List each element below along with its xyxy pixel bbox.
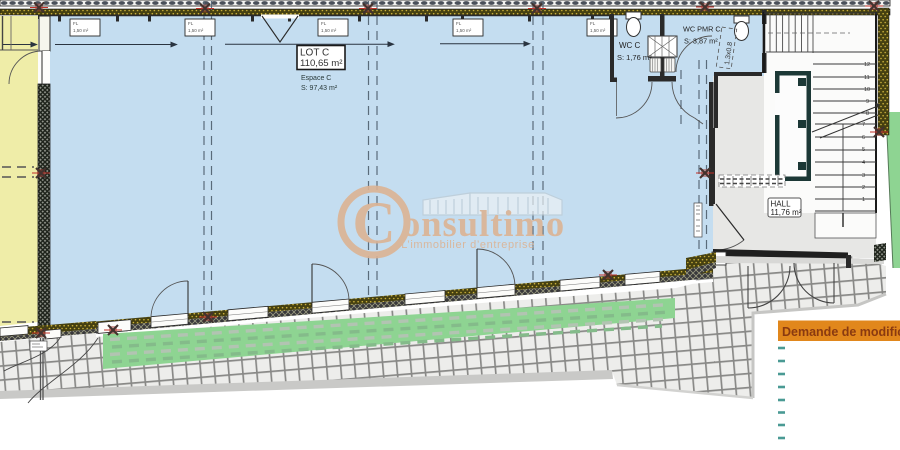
svg-text:WC C: WC C	[619, 41, 641, 50]
svg-text:5: 5	[862, 147, 865, 153]
svg-text:C: C	[352, 190, 395, 256]
svg-text:3: 3	[862, 173, 865, 179]
svg-text:12: 12	[864, 62, 870, 68]
svg-text:11,76 m²: 11,76 m²	[771, 208, 802, 217]
svg-text:7: 7	[862, 122, 865, 128]
svg-text:9: 9	[866, 99, 869, 105]
svg-text:onsultimo: onsultimo	[402, 203, 565, 244]
svg-text:1,50 m²: 1,50 m²	[590, 28, 606, 33]
svg-text:1,50 m²: 1,50 m²	[321, 28, 337, 33]
svg-text:WC PMR C: WC PMR C	[683, 25, 721, 34]
svg-text:FL: FL	[73, 21, 79, 26]
svg-text:FL: FL	[188, 21, 194, 26]
svg-text:4: 4	[862, 160, 865, 166]
svg-text:1,50 m²: 1,50 m²	[456, 28, 472, 33]
svg-text:FL: FL	[456, 21, 462, 26]
svg-text:S: 3,87 m²: S: 3,87 m²	[684, 37, 718, 46]
svg-text:8: 8	[866, 111, 869, 117]
svg-text:11: 11	[864, 75, 870, 81]
svg-text:2: 2	[862, 185, 865, 191]
svg-text:FL: FL	[590, 21, 596, 26]
svg-text:1,50 m²: 1,50 m²	[73, 28, 89, 33]
svg-text:1: 1	[862, 197, 865, 203]
svg-text:Espace C: Espace C	[301, 75, 331, 82]
svg-text:10: 10	[864, 87, 870, 93]
svg-text:S: 1,76 m²: S: 1,76 m²	[617, 53, 652, 62]
svg-text:L’immobilier d’entreprise: L’immobilier d’entreprise	[401, 239, 535, 251]
svg-text:Demande de modifica: Demande de modifica	[782, 325, 900, 339]
svg-text:LOT C: LOT C	[300, 48, 329, 59]
svg-text:S: 97,43 m²: S: 97,43 m²	[301, 85, 338, 92]
svg-text:1,50 m²: 1,50 m²	[188, 28, 204, 33]
svg-text:FL: FL	[321, 21, 327, 26]
svg-text:6: 6	[862, 135, 865, 141]
svg-text:110,65 m²: 110,65 m²	[300, 58, 343, 69]
